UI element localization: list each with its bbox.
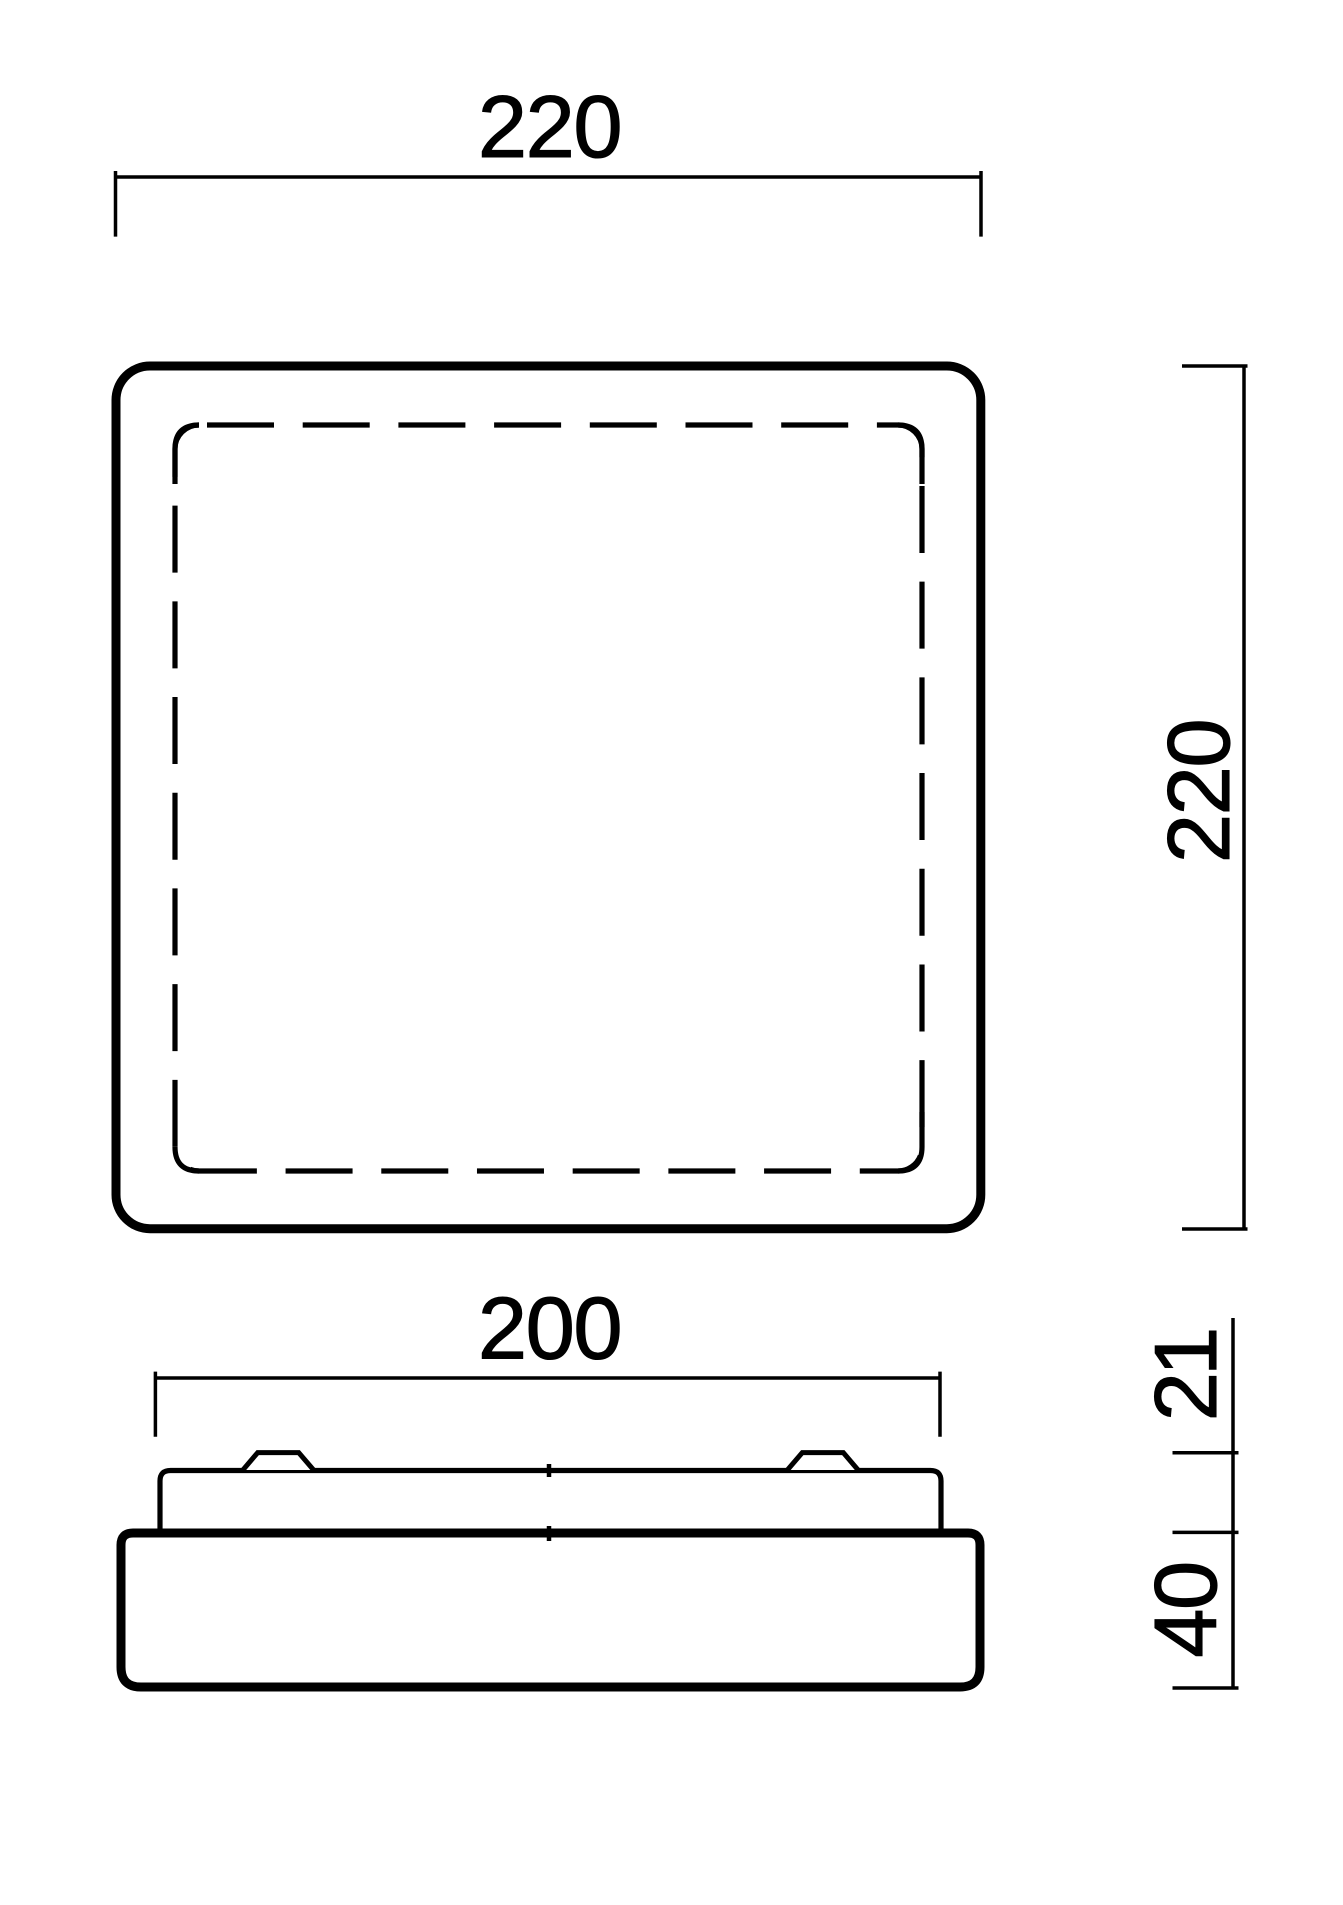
svg-text:21: 21 bbox=[1136, 1331, 1235, 1421]
svg-text:40: 40 bbox=[1136, 1562, 1235, 1657]
svg-text:200: 200 bbox=[478, 1279, 621, 1378]
svg-text:220: 220 bbox=[478, 77, 621, 176]
svg-text:220: 220 bbox=[1149, 720, 1248, 863]
